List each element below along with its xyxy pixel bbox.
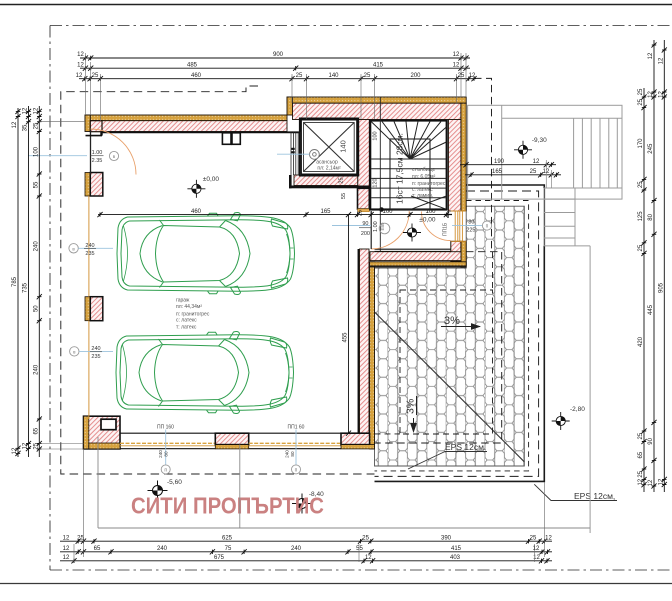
svg-text:ПП1 60: ПП1 60 <box>288 424 305 430</box>
svg-text:100: 100 <box>34 146 40 157</box>
svg-text:12: 12 <box>638 478 644 485</box>
svg-text:165: 165 <box>492 169 503 175</box>
svg-text:12: 12 <box>63 535 70 541</box>
svg-text:25: 25 <box>638 244 644 251</box>
svg-text:12: 12 <box>469 73 476 79</box>
svg-text:75: 75 <box>225 546 232 552</box>
svg-text:EPS 12см.: EPS 12см. <box>445 442 486 452</box>
svg-text:12: 12 <box>659 57 665 64</box>
svg-text:12: 12 <box>453 52 460 58</box>
svg-text:25: 25 <box>638 470 644 477</box>
svg-text:415: 415 <box>373 62 384 68</box>
svg-text:12: 12 <box>63 546 70 552</box>
svg-text:390: 390 <box>441 535 452 541</box>
svg-text:485: 485 <box>187 62 198 68</box>
svg-text:90: 90 <box>362 221 368 227</box>
svg-text:445: 445 <box>648 304 654 315</box>
svg-text:гараж: гараж <box>176 298 190 304</box>
svg-text:25: 25 <box>530 169 537 175</box>
svg-text:125: 125 <box>638 211 644 222</box>
svg-text:пл: 6,05м²: пл: 6,05м² <box>412 174 436 180</box>
svg-text:12: 12 <box>659 91 665 98</box>
svg-text:165: 165 <box>320 209 331 215</box>
svg-text:80: 80 <box>290 451 295 457</box>
svg-text:12: 12 <box>77 52 84 58</box>
svg-text:12: 12 <box>12 447 18 454</box>
svg-text:735: 735 <box>23 282 29 293</box>
svg-text:905: 905 <box>659 282 665 293</box>
svg-text:55: 55 <box>34 181 40 188</box>
svg-text:100: 100 <box>373 131 379 140</box>
svg-text:12: 12 <box>533 546 540 552</box>
svg-text:25: 25 <box>638 181 644 188</box>
svg-text:25: 25 <box>638 98 644 105</box>
svg-text:12: 12 <box>77 62 84 68</box>
svg-text:12: 12 <box>76 73 83 79</box>
svg-text:3%: 3% <box>444 315 460 327</box>
svg-text:12: 12 <box>533 159 540 165</box>
svg-text:80: 80 <box>648 213 654 220</box>
svg-text:25: 25 <box>92 73 99 79</box>
svg-text:900: 900 <box>273 52 284 58</box>
svg-text:-2,80: -2,80 <box>570 406 585 413</box>
svg-text:785: 785 <box>12 276 18 287</box>
svg-text:12: 12 <box>365 555 372 561</box>
svg-text:12: 12 <box>648 91 654 98</box>
svg-text:п: п <box>164 467 167 473</box>
svg-text:403: 403 <box>450 555 461 561</box>
svg-text:п: п <box>295 467 298 473</box>
svg-text:-9,30: -9,30 <box>532 137 547 144</box>
svg-text:12: 12 <box>545 535 552 541</box>
svg-text:90: 90 <box>648 437 654 444</box>
svg-text:25: 25 <box>34 122 40 129</box>
svg-text:225: 225 <box>466 228 475 234</box>
svg-text:1.00: 1.00 <box>373 221 379 232</box>
svg-text:EPS 12см,: EPS 12см, <box>574 491 615 501</box>
svg-text:12: 12 <box>533 555 540 561</box>
svg-text:55: 55 <box>341 193 347 199</box>
svg-text:т: ламин.: т: ламин. <box>412 193 433 199</box>
svg-text:25: 25 <box>296 73 303 79</box>
svg-text:±0,00: ±0,00 <box>419 217 436 224</box>
svg-text:200: 200 <box>361 231 370 237</box>
svg-text:25: 25 <box>362 535 369 541</box>
svg-text:12: 12 <box>648 52 654 59</box>
svg-text:625: 625 <box>222 535 233 541</box>
svg-text:25: 25 <box>34 442 40 449</box>
svg-text:2.35: 2.35 <box>92 158 103 164</box>
svg-text:240: 240 <box>158 450 163 458</box>
svg-text:пл: 2,14м²: пл: 2,14м² <box>317 166 341 172</box>
svg-text:235: 235 <box>85 251 94 257</box>
svg-text:170: 170 <box>638 138 644 149</box>
svg-text:55: 55 <box>356 546 363 552</box>
svg-text:455: 455 <box>343 332 349 343</box>
svg-text:стълбище: стълбище <box>412 167 436 173</box>
svg-text:100: 100 <box>425 209 436 215</box>
svg-text:12: 12 <box>23 107 29 114</box>
svg-text:65: 65 <box>638 451 644 458</box>
svg-text:240: 240 <box>91 346 100 352</box>
svg-text:12: 12 <box>34 107 40 114</box>
svg-text:12: 12 <box>63 555 70 561</box>
svg-text:12: 12 <box>648 479 654 486</box>
svg-text:460: 460 <box>191 73 202 79</box>
svg-text:140: 140 <box>339 140 348 153</box>
svg-text:65: 65 <box>94 546 101 552</box>
svg-text:65: 65 <box>34 427 40 434</box>
svg-text:675: 675 <box>214 555 225 561</box>
svg-text:25: 25 <box>638 432 644 439</box>
svg-text:235: 235 <box>91 354 100 360</box>
svg-text:35: 35 <box>23 124 29 131</box>
svg-text:ПП1Б: ПП1Б <box>443 222 449 236</box>
svg-text:16ст 17,5см 28см.: 16ст 17,5см 28см. <box>395 133 405 204</box>
svg-text:±0,00: ±0,00 <box>203 176 220 183</box>
svg-text:-5,60: -5,60 <box>167 479 182 486</box>
svg-text:80: 80 <box>164 451 169 457</box>
svg-text:25: 25 <box>339 177 345 183</box>
svg-text:80: 80 <box>468 219 474 225</box>
svg-text:200: 200 <box>410 73 421 79</box>
svg-text:25: 25 <box>358 210 364 216</box>
svg-text:460: 460 <box>191 209 202 215</box>
svg-text:190: 190 <box>494 159 505 165</box>
svg-text:пл: 44,34м²: пл: 44,34м² <box>176 304 202 310</box>
svg-text:25: 25 <box>458 73 465 79</box>
svg-text:240: 240 <box>85 243 94 249</box>
svg-text:240: 240 <box>34 241 40 252</box>
svg-text:240: 240 <box>291 546 302 552</box>
svg-text:415: 415 <box>451 546 462 552</box>
svg-text:25: 25 <box>530 535 537 541</box>
svg-text:240: 240 <box>157 546 168 552</box>
svg-text:50: 50 <box>34 305 40 312</box>
svg-text:25: 25 <box>364 73 371 79</box>
svg-text:25: 25 <box>638 88 644 95</box>
svg-text:245: 245 <box>648 143 654 154</box>
svg-text:с: латекс: с: латекс <box>176 318 197 324</box>
svg-text:1.00: 1.00 <box>92 150 103 156</box>
svg-text:СИТИ ПРОПЪРТИС: СИТИ ПРОПЪРТИС <box>131 493 324 519</box>
svg-text:240: 240 <box>34 364 40 375</box>
svg-text:420: 420 <box>638 336 644 347</box>
svg-text:140: 140 <box>328 73 339 79</box>
svg-text:120: 120 <box>373 178 379 187</box>
svg-text:ПП 160: ПП 160 <box>157 424 174 430</box>
svg-text:12: 12 <box>12 121 18 128</box>
svg-text:100: 100 <box>382 209 393 215</box>
svg-text:ЕВ0: ЕВ0 <box>380 222 385 231</box>
svg-text:12: 12 <box>659 478 665 485</box>
svg-text:12: 12 <box>23 442 29 449</box>
svg-text:240: 240 <box>285 450 290 458</box>
svg-text:т: латекс: т: латекс <box>176 325 197 331</box>
svg-text:12: 12 <box>453 62 460 68</box>
svg-text:3%: 3% <box>405 399 417 414</box>
svg-text:п: п <box>486 224 489 230</box>
